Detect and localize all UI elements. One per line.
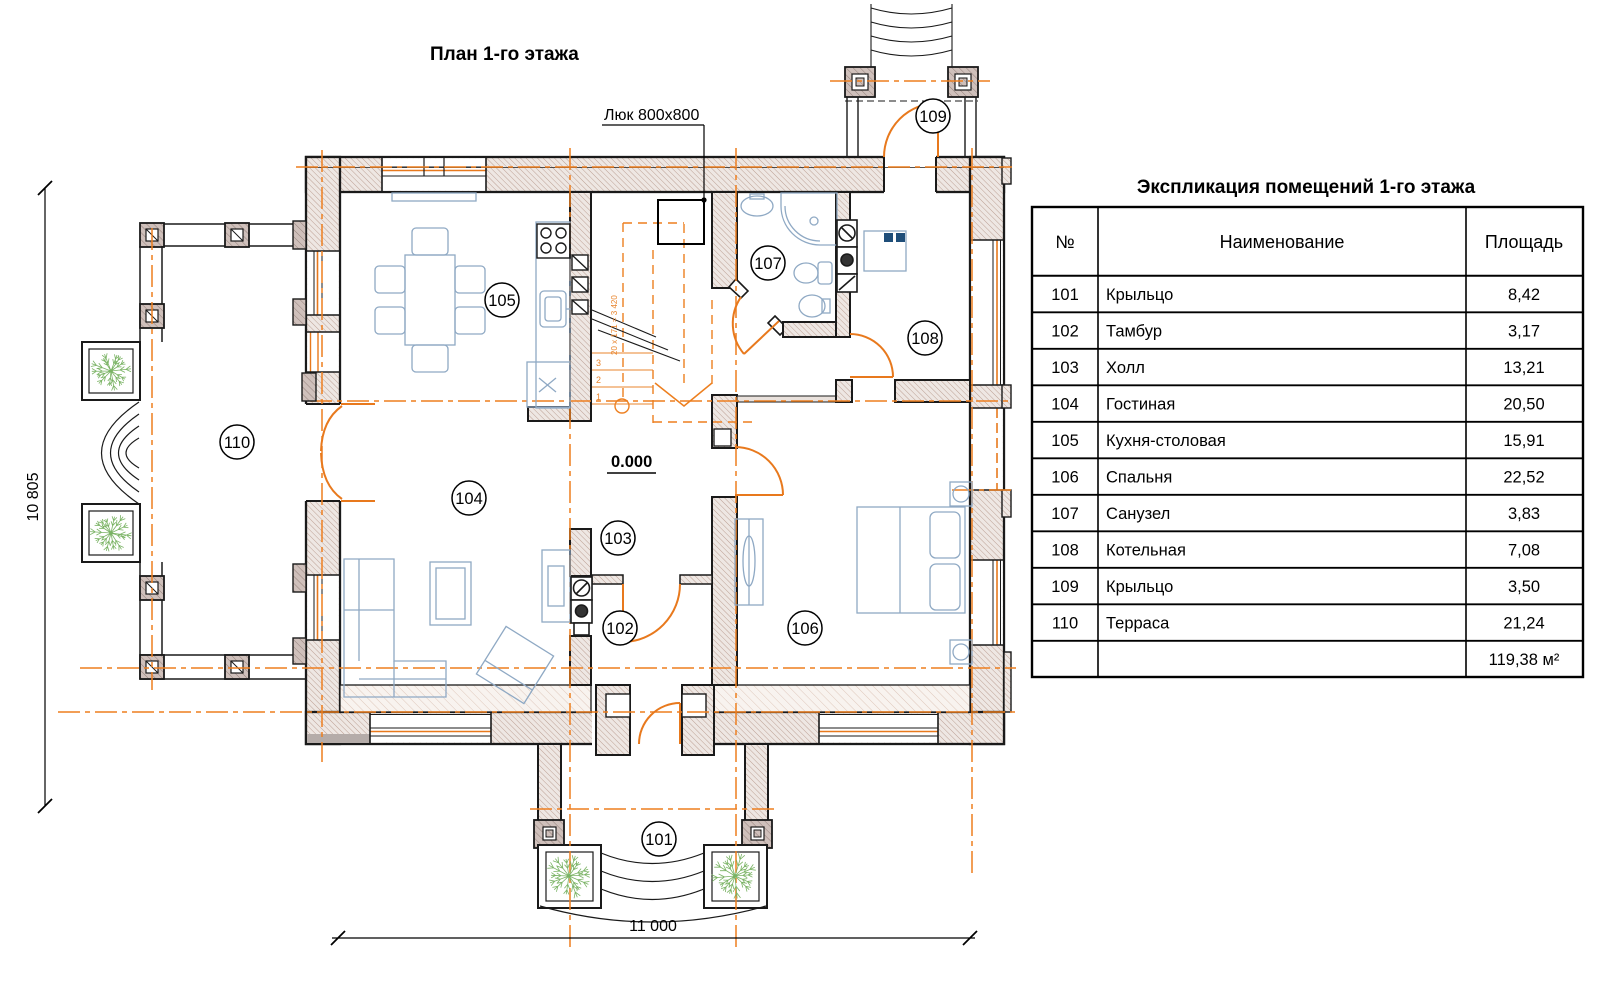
svg-text:3: 3	[596, 358, 601, 368]
svg-text:105: 105	[1051, 432, 1079, 450]
svg-text:7,08: 7,08	[1508, 542, 1540, 560]
svg-text:20,50: 20,50	[1503, 396, 1544, 414]
svg-text:Площадь: Площадь	[1485, 232, 1563, 252]
svg-text:Котельная: Котельная	[1106, 542, 1186, 560]
svg-text:102: 102	[1051, 323, 1079, 341]
svg-text:13,21: 13,21	[1503, 359, 1544, 377]
svg-text:8,42: 8,42	[1508, 286, 1540, 304]
svg-text:Экспликация помещений 1-го эта: Экспликация помещений 1-го этажа	[1137, 177, 1476, 198]
svg-text:3,50: 3,50	[1508, 578, 1540, 596]
svg-text:110: 110	[1052, 615, 1078, 633]
svg-text:Крыльцо: Крыльцо	[1106, 578, 1173, 596]
svg-text:108: 108	[1051, 542, 1079, 560]
svg-text:21,24: 21,24	[1503, 615, 1544, 633]
svg-text:Тамбур: Тамбур	[1106, 323, 1162, 341]
svg-text:109: 109	[919, 108, 947, 126]
svg-text:110: 110	[224, 434, 250, 452]
svg-text:Терраса: Терраса	[1106, 615, 1170, 633]
svg-text:№: №	[1055, 232, 1074, 252]
svg-text:20 х 171 = 3 420: 20 х 171 = 3 420	[610, 295, 619, 355]
svg-text:10 805: 10 805	[25, 472, 42, 521]
svg-text:103: 103	[1051, 359, 1079, 377]
svg-text:22,52: 22,52	[1503, 469, 1544, 487]
svg-text:109: 109	[1051, 578, 1079, 596]
svg-text:104: 104	[455, 490, 483, 508]
svg-text:107: 107	[1051, 505, 1079, 523]
svg-text:102: 102	[606, 620, 634, 638]
svg-text:104: 104	[1051, 396, 1079, 414]
svg-text:2: 2	[596, 375, 601, 385]
svg-text:Кухня-столовая: Кухня-столовая	[1106, 432, 1226, 450]
svg-text:15,91: 15,91	[1503, 432, 1544, 450]
svg-text:Спальня: Спальня	[1106, 469, 1172, 487]
svg-text:106: 106	[1051, 469, 1079, 487]
svg-text:3,83: 3,83	[1508, 505, 1540, 523]
svg-text:1: 1	[596, 392, 601, 402]
svg-text:11 000: 11 000	[629, 918, 677, 935]
svg-text:Холл: Холл	[1106, 359, 1145, 377]
svg-text:101: 101	[1051, 286, 1079, 304]
svg-text:106: 106	[791, 620, 819, 638]
svg-text:Гостиная: Гостиная	[1106, 396, 1175, 414]
svg-text:0.000: 0.000	[611, 453, 652, 471]
svg-text:107: 107	[754, 255, 782, 273]
svg-text:Люк 800х800: Люк 800х800	[604, 107, 699, 124]
svg-text:План 1-го этажа: План 1-го этажа	[430, 44, 579, 65]
svg-text:101: 101	[645, 831, 673, 849]
svg-text:119,38 м²: 119,38 м²	[1489, 651, 1560, 669]
svg-text:Наименование: Наименование	[1220, 232, 1345, 252]
svg-text:Крыльцо: Крыльцо	[1106, 286, 1173, 304]
svg-text:105: 105	[488, 292, 516, 310]
svg-text:Санузел: Санузел	[1106, 505, 1170, 523]
svg-text:108: 108	[911, 330, 939, 348]
svg-text:103: 103	[604, 530, 632, 548]
svg-text:3,17: 3,17	[1508, 323, 1540, 341]
